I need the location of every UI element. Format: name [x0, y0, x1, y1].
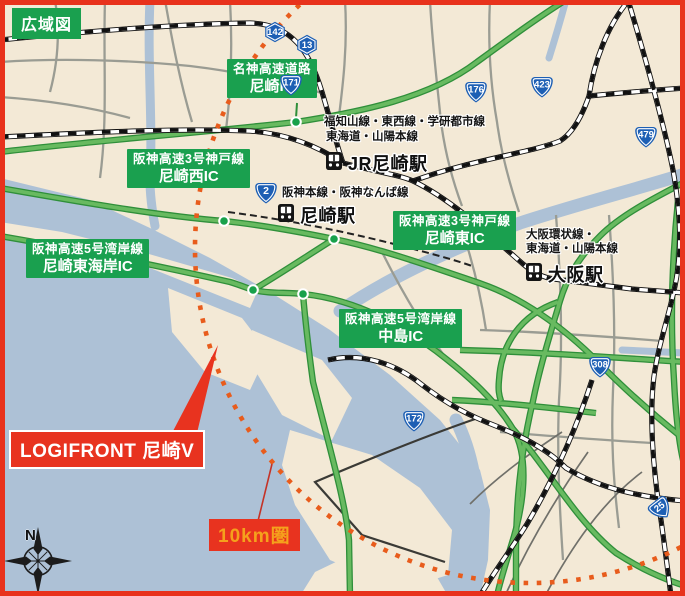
- label-line2: 尼崎東IC: [399, 230, 510, 249]
- route-shield-176: 176: [464, 81, 488, 103]
- label-line1: 阪神高速5号湾岸線: [345, 312, 456, 328]
- site-label-logifront: LOGIFRONT 尼崎V: [9, 430, 205, 469]
- ic-dot-amagasaki: [290, 116, 302, 128]
- route-shield-2: 2: [254, 182, 278, 204]
- label-amagasaki-nishi-ic: 阪神高速3号神戸線 尼崎西IC: [127, 149, 250, 188]
- route-shield-171: 171: [279, 74, 303, 96]
- route-shield-423: 423: [530, 76, 554, 98]
- label-line1: 阪神高速3号神戸線: [133, 152, 244, 168]
- jr-lines-note-1: 福知山線・東西線・学研都市線: [324, 116, 485, 130]
- route-shield-479: 479: [634, 126, 658, 148]
- hanshin-lines-note: 阪神本線・阪神なんば線: [282, 187, 409, 201]
- map-title-badge: 広域図: [12, 8, 81, 39]
- osaka-lines-note-2: 東海道・山陽本線: [526, 243, 618, 257]
- route-shield-308: 308: [588, 356, 612, 378]
- svg-text:172: 172: [406, 413, 422, 424]
- jr-lines-note-2: 東海道・山陽本線: [326, 131, 418, 145]
- svg-text:13: 13: [302, 40, 313, 51]
- svg-text:142: 142: [267, 27, 283, 38]
- route-shield-172: 172: [402, 410, 426, 432]
- svg-text:171: 171: [283, 77, 300, 88]
- jr-amagasaki-station-icon: [326, 152, 342, 170]
- compass-north-label: N: [25, 527, 36, 544]
- route-shield-13: 13: [295, 34, 319, 56]
- ic-dot-amagasaki-nishi: [218, 215, 230, 227]
- hanshin-amagasaki-station-icon: [278, 204, 294, 222]
- radius-10km-label: 10km圏: [209, 519, 300, 551]
- label-higashikaigan-ic: 阪神高速5号湾岸線 尼崎東海岸IC: [26, 239, 149, 278]
- svg-text:308: 308: [592, 359, 608, 370]
- hanshin-amagasaki-station-name: 尼崎駅: [300, 202, 356, 228]
- svg-text:423: 423: [534, 79, 550, 90]
- wide-area-map: 広域図 名神高速道路 尼崎IC 阪神高速3号神戸線 尼崎西IC 阪神高速3号神戸…: [0, 0, 685, 596]
- jr-amagasaki-station-name: JR尼崎駅: [348, 150, 428, 176]
- osaka-station-icon: [526, 263, 542, 281]
- route-shield-142: 142: [263, 21, 287, 43]
- ic-dot-higashikaigan: [247, 284, 259, 296]
- svg-text:176: 176: [468, 84, 484, 95]
- ic-dot-nakajima: [297, 288, 309, 300]
- osaka-lines-note-1: 大阪環状線・: [526, 229, 595, 243]
- svg-text:2: 2: [263, 185, 269, 197]
- label-meishin-amagasaki-ic: 名神高速道路 尼崎IC: [227, 59, 317, 98]
- ic-dot-amagasaki-higashi: [328, 233, 340, 245]
- meishin-label-line: [296, 103, 297, 118]
- osaka-station-name: 大阪駅: [548, 261, 604, 287]
- label-amagasaki-higashi-ic: 阪神高速3号神戸線 尼崎東IC: [393, 211, 516, 250]
- label-nakajima-ic: 阪神高速5号湾岸線 中島IC: [339, 309, 462, 348]
- label-line1: 阪神高速3号神戸線: [399, 214, 510, 230]
- label-line2: 尼崎東海岸IC: [32, 258, 143, 277]
- label-line2: 中島IC: [345, 328, 456, 347]
- label-line1: 阪神高速5号湾岸線: [32, 242, 143, 258]
- svg-text:479: 479: [638, 129, 654, 140]
- base-map-canvas: [0, 0, 685, 596]
- label-line2: 尼崎西IC: [133, 168, 244, 187]
